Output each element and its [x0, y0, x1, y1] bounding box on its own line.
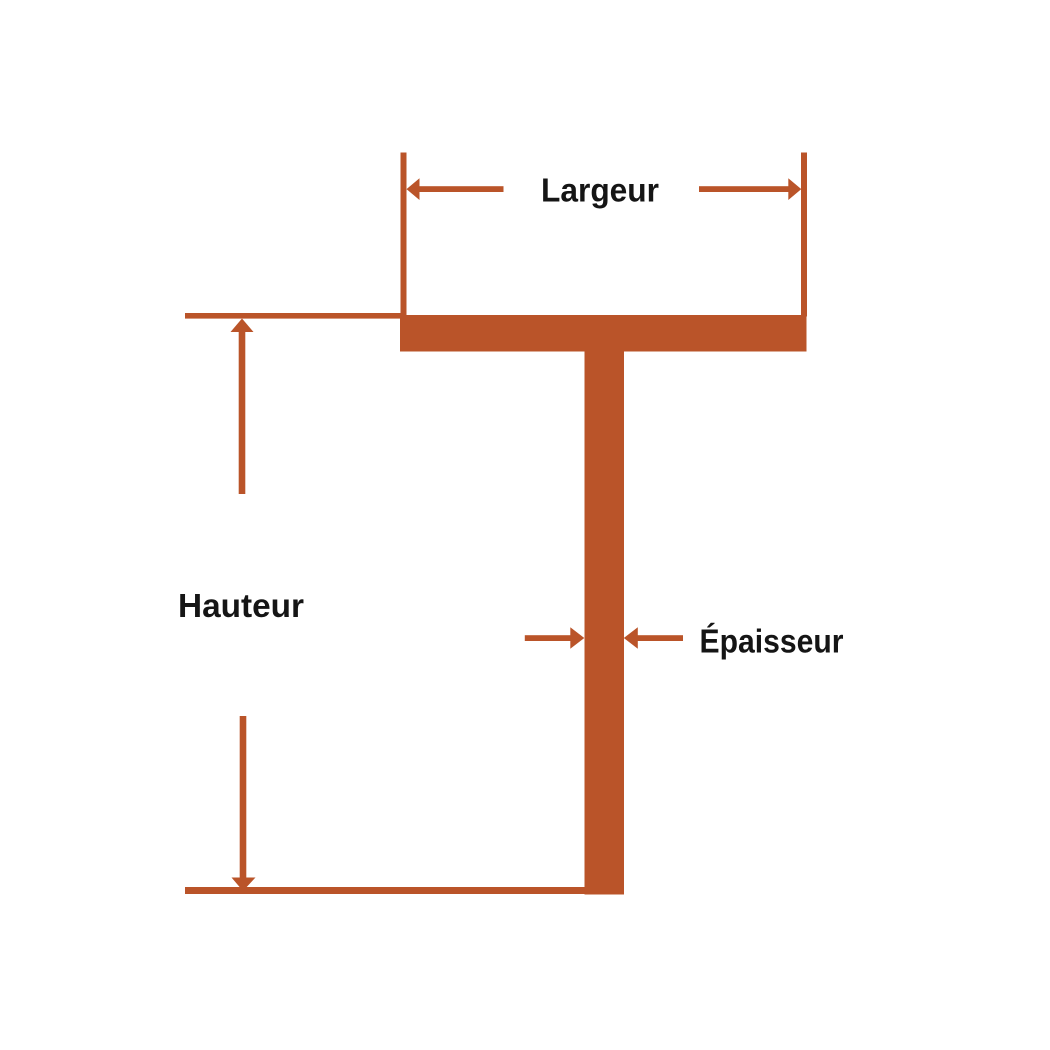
svg-text:Épaisseur: Épaisseur [700, 622, 844, 659]
svg-text:Largeur: Largeur [541, 171, 659, 208]
svg-text:Hauteur: Hauteur [178, 587, 304, 624]
